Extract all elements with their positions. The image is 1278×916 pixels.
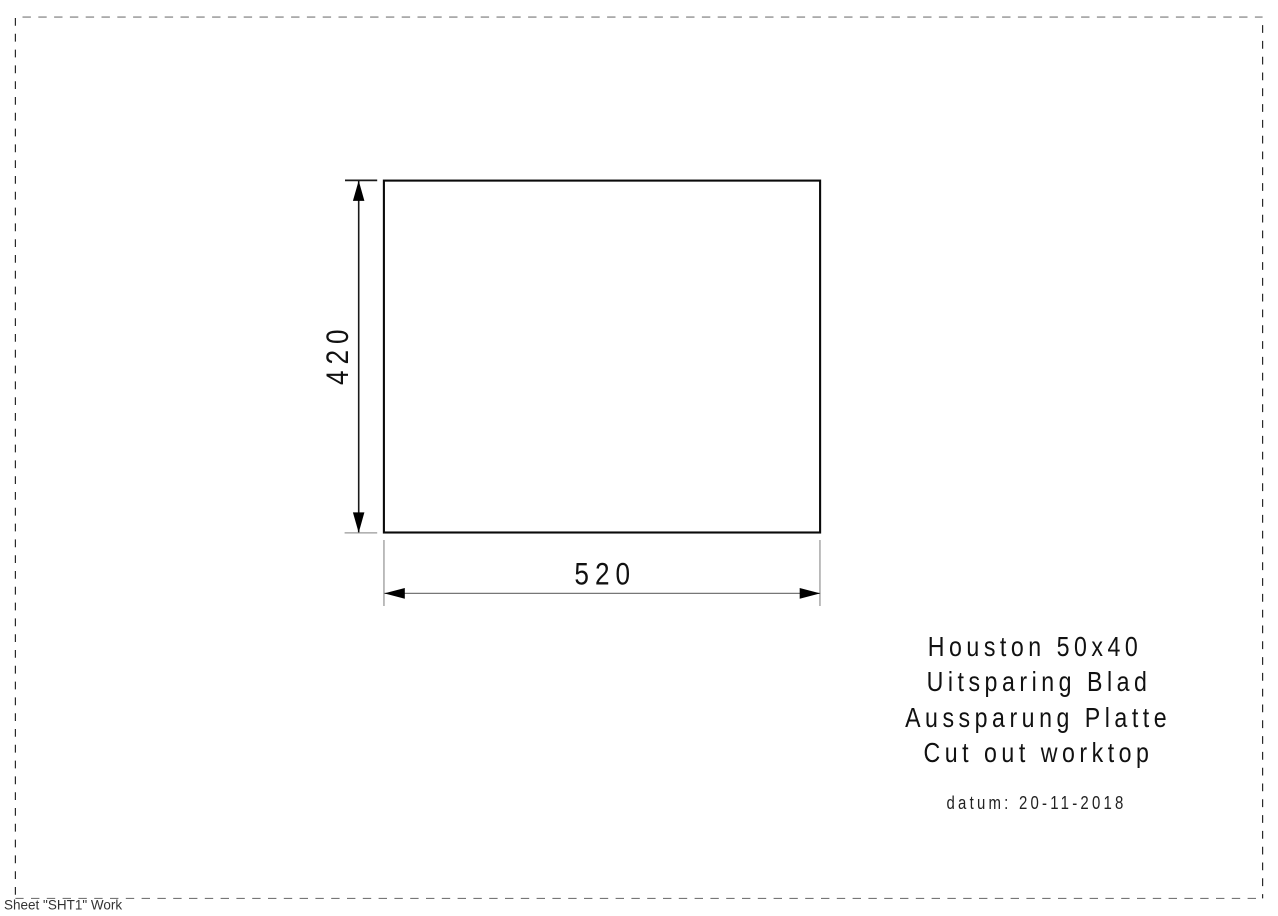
svg-text:Cut out worktop: Cut out worktop [924, 738, 1154, 768]
svg-text:520: 520 [574, 557, 636, 592]
svg-text:Aussparung Platte: Aussparung Platte [905, 703, 1171, 733]
svg-text:Sheet "SHT1" Work: Sheet "SHT1" Work [4, 897, 122, 912]
svg-text:datum: 20-11-2018: datum: 20-11-2018 [947, 793, 1127, 814]
svg-text:Houston 50x40: Houston 50x40 [928, 632, 1143, 662]
svg-text:Uitsparing Blad: Uitsparing Blad [927, 667, 1152, 697]
svg-text:420: 420 [321, 323, 356, 385]
